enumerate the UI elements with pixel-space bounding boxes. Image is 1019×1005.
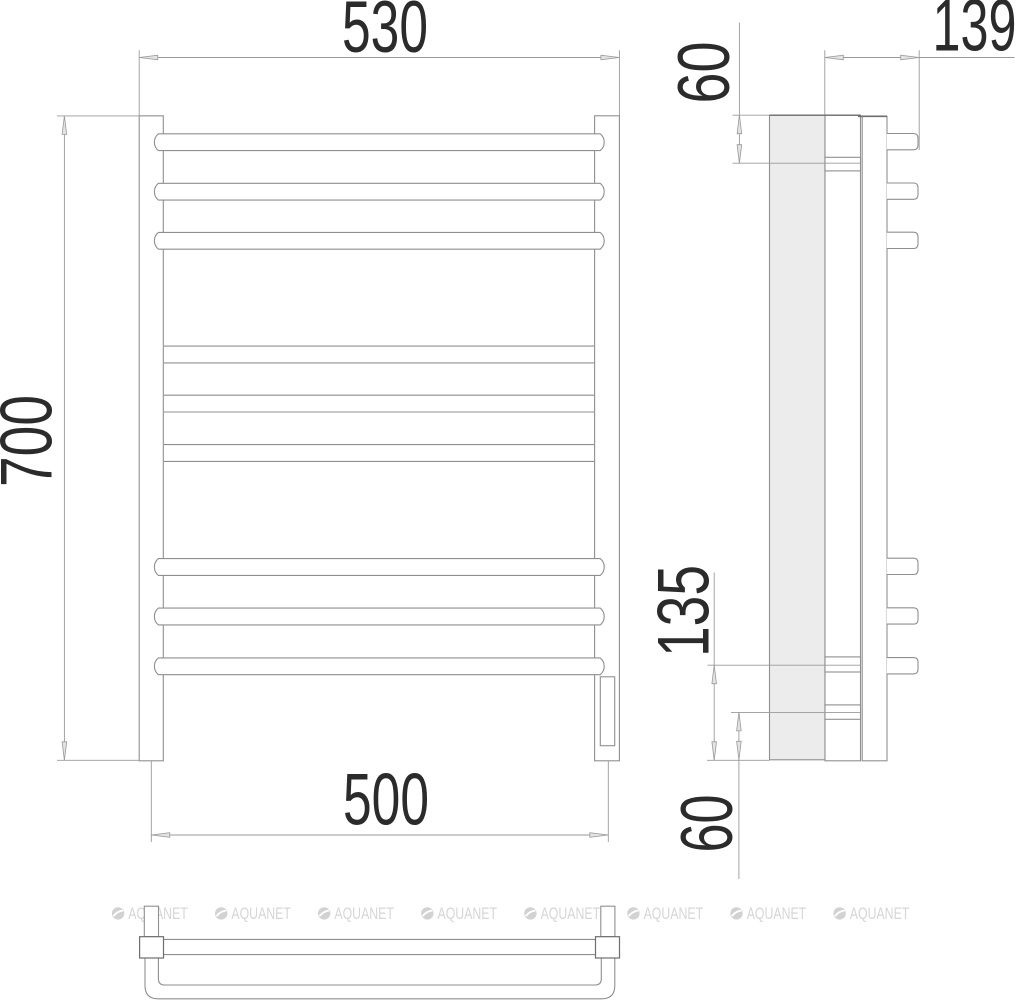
svg-text:AQUANET: AQUANET	[850, 905, 910, 923]
svg-text:135: 135	[644, 565, 725, 657]
svg-text:139: 139	[933, 0, 1017, 67]
svg-text:530: 530	[342, 0, 428, 68]
svg-text:AQUANET: AQUANET	[438, 905, 498, 923]
svg-text:700: 700	[0, 395, 68, 487]
svg-text:AQUANET: AQUANET	[644, 905, 704, 923]
svg-text:60: 60	[664, 41, 745, 103]
svg-text:AQUANET: AQUANET	[541, 905, 601, 923]
svg-text:AQUANET: AQUANET	[747, 905, 807, 923]
svg-text:AQUANET: AQUANET	[231, 905, 291, 923]
svg-text:60: 60	[667, 795, 748, 853]
svg-text:500: 500	[343, 760, 429, 841]
svg-text:AQUANET: AQUANET	[334, 905, 394, 923]
